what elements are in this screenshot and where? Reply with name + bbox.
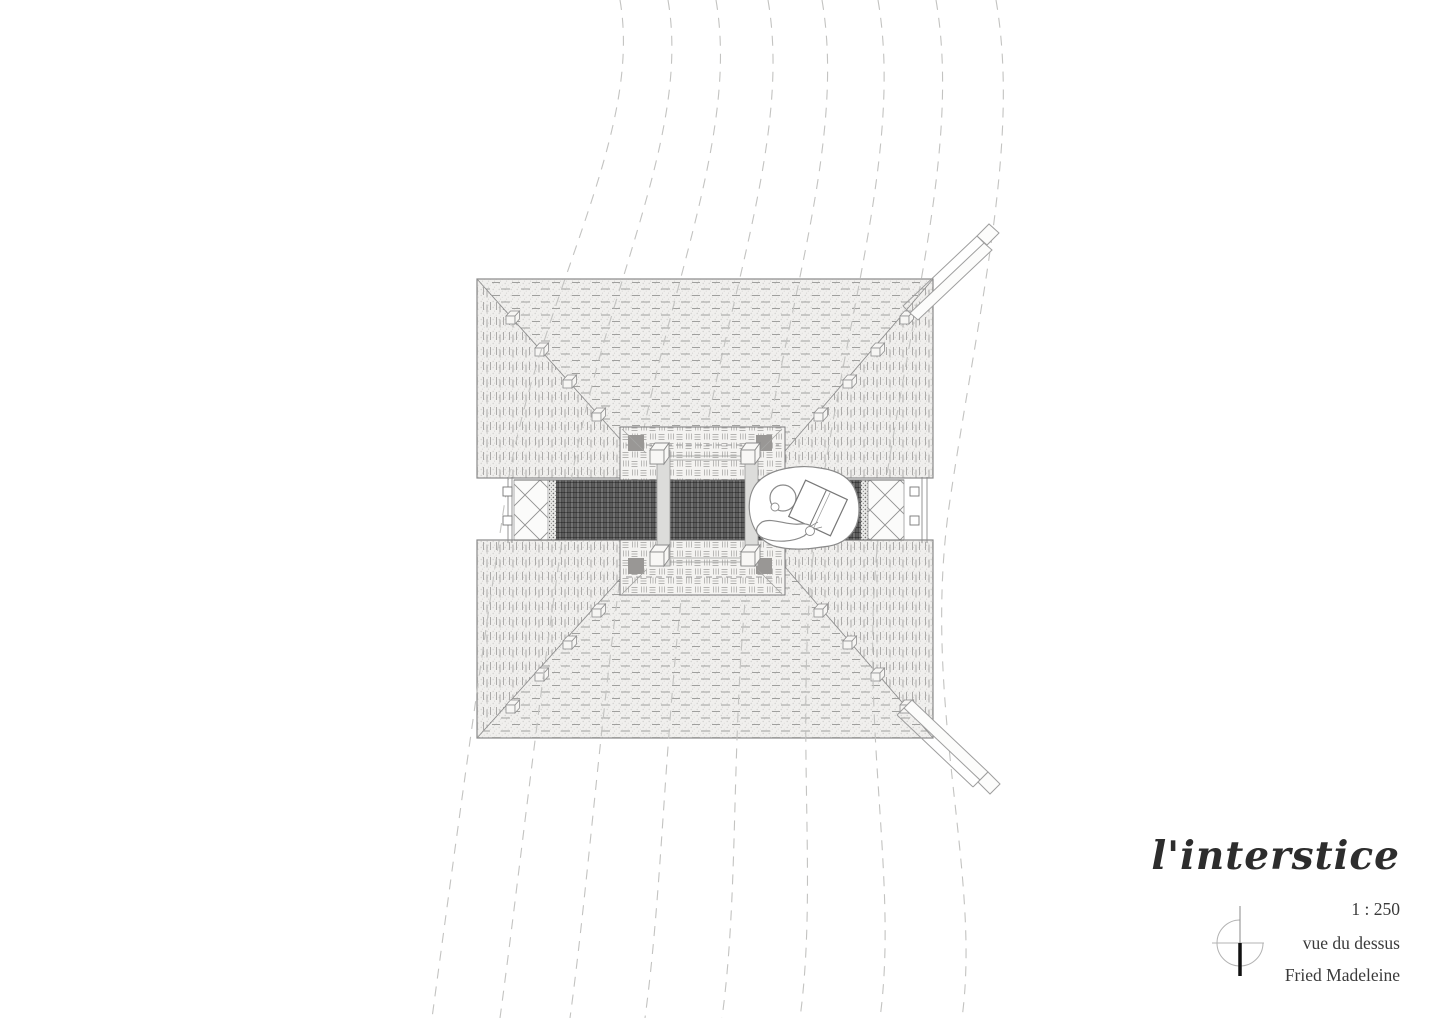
reading-figure bbox=[749, 467, 859, 550]
drawing-scale: 1 : 250 bbox=[980, 899, 1400, 920]
title-block: l'interstice 1 : 250 vue du dessus Fried… bbox=[980, 836, 1400, 986]
right-rail bbox=[910, 477, 927, 543]
lattice-screen-right bbox=[868, 480, 904, 540]
drawing-sheet: l'interstice 1 : 250 vue du dessus Fried… bbox=[0, 0, 1440, 1018]
view-label: vue du dessus bbox=[980, 933, 1400, 954]
ne-walkway-beam bbox=[903, 224, 999, 320]
central-gallery-band bbox=[503, 477, 927, 543]
author-name: Fried Madeleine bbox=[980, 965, 1400, 986]
project-title: l'interstice bbox=[980, 836, 1400, 877]
se-walkway-beam bbox=[897, 700, 1000, 794]
lattice-screen-left bbox=[514, 480, 548, 540]
left-rail bbox=[503, 477, 512, 543]
